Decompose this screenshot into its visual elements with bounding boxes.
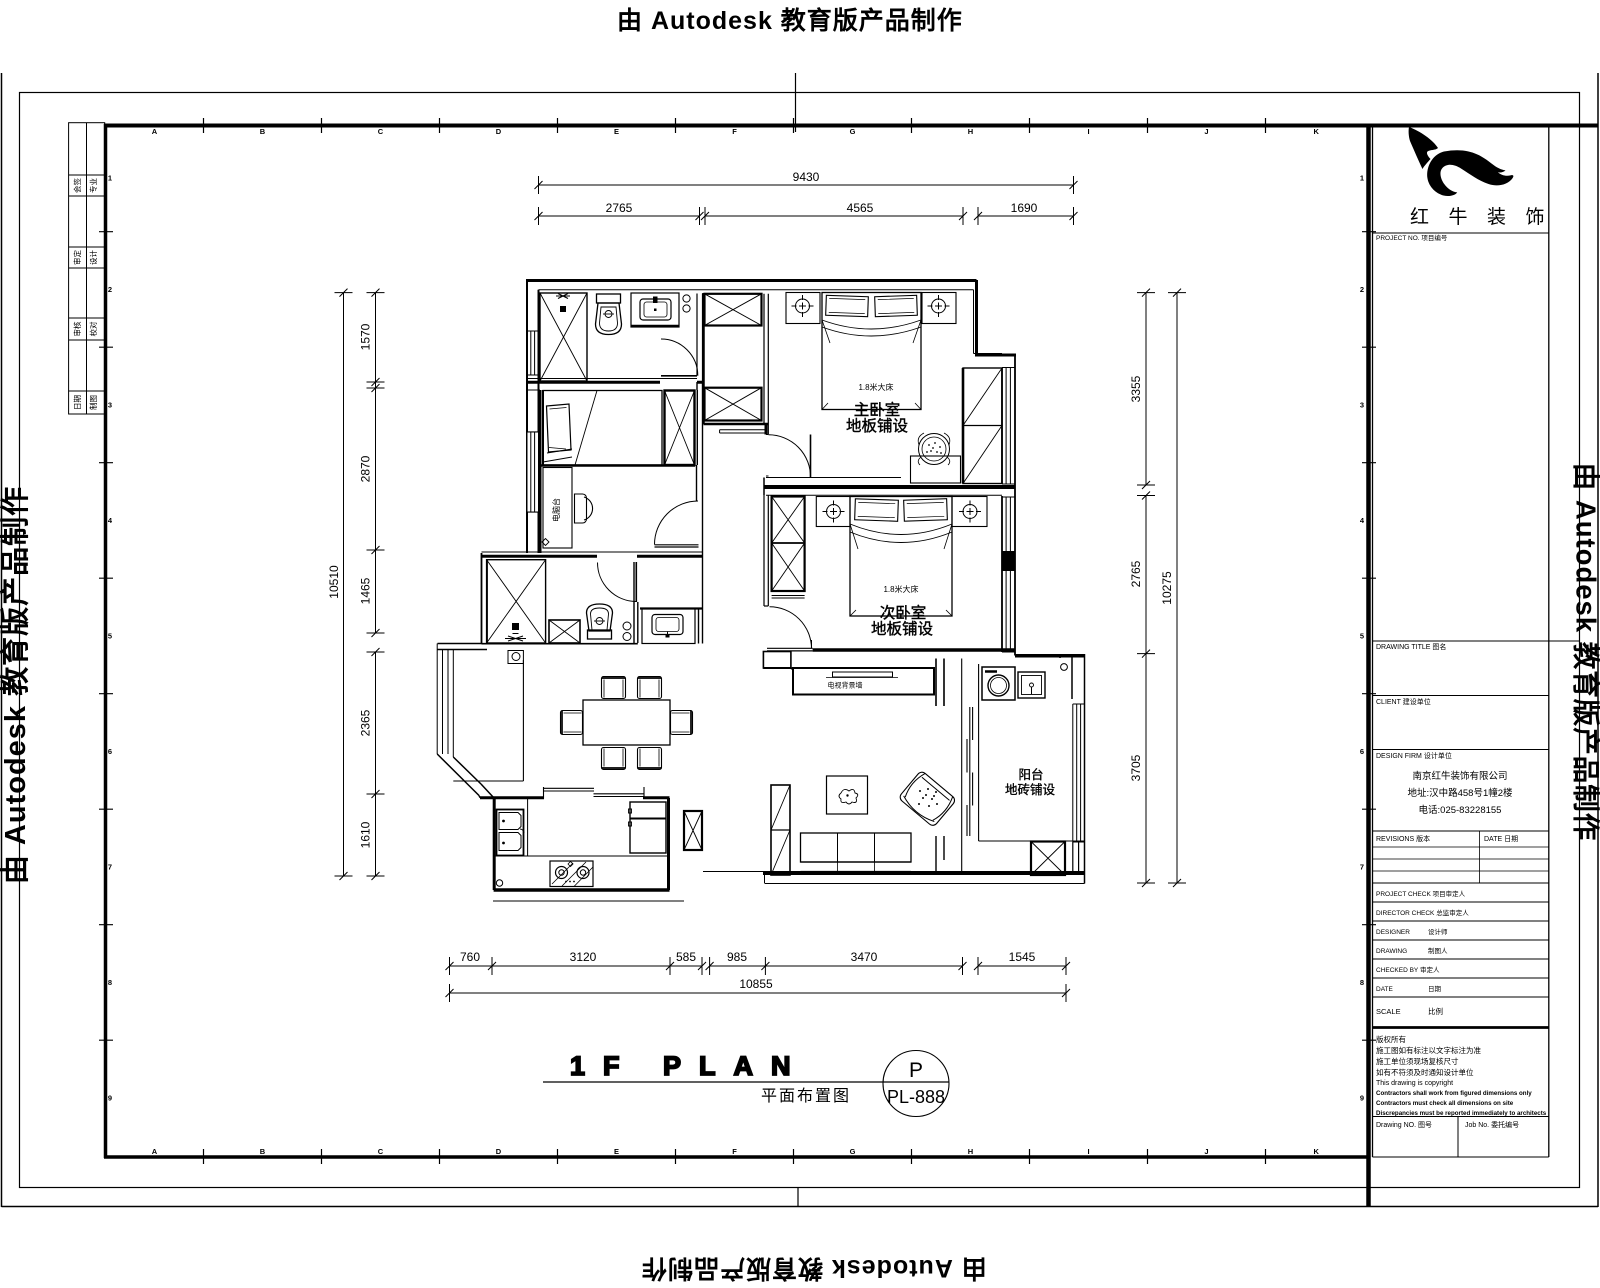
svg-text:PROJECT CHECK 项目审定人: PROJECT CHECK 项目审定人 xyxy=(1376,889,1466,898)
svg-text:A: A xyxy=(152,127,158,136)
svg-text:B: B xyxy=(260,1147,266,1156)
svg-text:DRAWING: DRAWING xyxy=(1376,948,1407,955)
svg-text:DESIGNER: DESIGNER xyxy=(1376,929,1410,936)
svg-text:DATE 日期: DATE 日期 xyxy=(1484,835,1518,843)
svg-text:电话:025-83228155: 电话:025-83228155 xyxy=(1419,804,1502,816)
svg-text:I: I xyxy=(1087,127,1089,136)
svg-text:9: 9 xyxy=(108,1094,112,1103)
svg-text:J: J xyxy=(1204,1147,1208,1156)
svg-text:I: I xyxy=(1087,1147,1089,1156)
svg-text:760: 760 xyxy=(460,950,480,964)
svg-text:7: 7 xyxy=(108,863,112,872)
svg-text:7: 7 xyxy=(1360,863,1364,872)
svg-text:主卧室: 主卧室 xyxy=(854,401,901,419)
svg-text:2365: 2365 xyxy=(359,709,373,736)
svg-text:SCALE: SCALE xyxy=(1376,1007,1401,1016)
svg-text:985: 985 xyxy=(727,950,747,964)
svg-text:3705: 3705 xyxy=(1129,754,1143,781)
svg-text:比例: 比例 xyxy=(1428,1006,1443,1016)
svg-text:5: 5 xyxy=(108,632,112,641)
svg-text:DESIGN FIRM 设计单位: DESIGN FIRM 设计单位 xyxy=(1376,751,1452,760)
svg-text:地址:汉中路458号1幢2楼: 地址:汉中路458号1幢2楼 xyxy=(1407,787,1513,799)
svg-text:3470: 3470 xyxy=(851,950,878,964)
svg-text:校对: 校对 xyxy=(88,321,98,336)
svg-text:6: 6 xyxy=(1360,747,1364,756)
svg-text:H: H xyxy=(968,127,973,136)
svg-text:制图人: 制图人 xyxy=(1428,946,1448,955)
svg-text:次卧室: 次卧室 xyxy=(880,604,927,622)
svg-text:REVISIONS 版本: REVISIONS 版本 xyxy=(1376,834,1430,843)
svg-text:DIRECTOR CHECK 总监审定人: DIRECTOR CHECK 总监审定人 xyxy=(1376,908,1469,917)
svg-text:8: 8 xyxy=(108,978,112,987)
svg-text:2870: 2870 xyxy=(359,455,373,482)
svg-text:地砖铺设: 地砖铺设 xyxy=(1005,782,1056,797)
svg-text:PROJECT NO. 项目编号: PROJECT NO. 项目编号 xyxy=(1376,233,1448,242)
svg-text:会签: 会签 xyxy=(72,178,82,193)
svg-text:DRAWING TITLE 图名: DRAWING TITLE 图名 xyxy=(1376,642,1446,651)
svg-text:专业: 专业 xyxy=(88,178,98,193)
svg-text:DATE: DATE xyxy=(1376,986,1394,993)
svg-text:J: J xyxy=(1204,127,1208,136)
svg-text:地板铺设: 地板铺设 xyxy=(846,417,908,435)
svg-text:G: G xyxy=(850,1147,856,1156)
svg-text:4: 4 xyxy=(108,516,113,525)
svg-text:2765: 2765 xyxy=(606,201,633,215)
svg-text:Job No. 委托编号: Job No. 委托编号 xyxy=(1465,1120,1519,1129)
svg-text:C: C xyxy=(378,127,384,136)
svg-text:版权所有: 版权所有 xyxy=(1376,1034,1406,1044)
svg-text:E: E xyxy=(614,127,619,136)
svg-text:Contractors must check all dim: Contractors must check all dimensions on… xyxy=(1376,1100,1514,1107)
svg-text:PL-888: PL-888 xyxy=(887,1087,945,1107)
svg-text:3120: 3120 xyxy=(570,950,597,964)
svg-text:阳台: 阳台 xyxy=(1018,767,1043,782)
svg-text:施工单位须现场复核尺寸: 施工单位须现场复核尺寸 xyxy=(1376,1056,1459,1066)
svg-text:C: C xyxy=(378,1147,384,1156)
svg-text:1610: 1610 xyxy=(359,821,373,848)
svg-text:平面布置图: 平面布置图 xyxy=(761,1087,851,1105)
svg-text:Drawing NO. 图号: Drawing NO. 图号 xyxy=(1376,1121,1432,1129)
svg-text:2765: 2765 xyxy=(1129,560,1143,587)
svg-text:如有不符须及时通知设计单位: 如有不符须及时通知设计单位 xyxy=(1376,1067,1474,1077)
svg-text:施工图如有标注以文字标注为准: 施工图如有标注以文字标注为准 xyxy=(1376,1045,1481,1055)
svg-text:制图: 制图 xyxy=(88,395,98,410)
svg-text:9: 9 xyxy=(1360,1094,1364,1103)
svg-text:CHECKED BY 审定人: CHECKED BY 审定人 xyxy=(1376,965,1440,974)
svg-text:6: 6 xyxy=(108,747,112,756)
svg-text:1690: 1690 xyxy=(1011,201,1038,215)
svg-text:B: B xyxy=(260,127,266,136)
svg-text:D: D xyxy=(496,1147,502,1156)
svg-text:4: 4 xyxy=(1360,516,1365,525)
svg-text:P: P xyxy=(909,1059,923,1082)
svg-text:G: G xyxy=(850,127,856,136)
svg-text:1545: 1545 xyxy=(1009,950,1036,964)
svg-text:红牛装饰: 红牛装饰 xyxy=(1410,206,1564,228)
svg-text:3355: 3355 xyxy=(1129,375,1143,402)
svg-text:1: 1 xyxy=(1360,174,1364,183)
svg-text:E: E xyxy=(614,1147,619,1156)
svg-text:1: 1 xyxy=(108,174,112,183)
svg-text:This drawing is copyright: This drawing is copyright xyxy=(1376,1080,1453,1087)
svg-text:2: 2 xyxy=(108,285,112,294)
svg-text:1570: 1570 xyxy=(359,323,373,350)
svg-text:10275: 10275 xyxy=(1160,571,1174,605)
svg-text:1.8米大床: 1.8米大床 xyxy=(883,584,918,594)
svg-text:K: K xyxy=(1313,127,1319,136)
svg-text:2: 2 xyxy=(1360,285,1364,294)
svg-text:日期: 日期 xyxy=(1428,985,1442,993)
svg-text:1465: 1465 xyxy=(359,577,373,604)
svg-text:设计师: 设计师 xyxy=(1428,927,1448,936)
svg-text:1F PLAN: 1F PLAN xyxy=(570,1051,809,1081)
svg-text:F: F xyxy=(732,1147,737,1156)
svg-text:地板铺设: 地板铺设 xyxy=(871,620,933,638)
svg-text:4565: 4565 xyxy=(847,201,874,215)
svg-text:南京红牛装饰有限公司: 南京红牛装饰有限公司 xyxy=(1412,770,1507,782)
svg-text:K: K xyxy=(1313,1147,1319,1156)
svg-text:Discrepancies must be reported: Discrepancies must be reported immediate… xyxy=(1376,1110,1547,1117)
svg-text:8: 8 xyxy=(1360,978,1364,987)
svg-text:H: H xyxy=(968,1147,973,1156)
svg-text:D: D xyxy=(496,127,502,136)
svg-text:9430: 9430 xyxy=(793,170,820,184)
svg-text:电脑台: 电脑台 xyxy=(551,498,561,522)
svg-text:585: 585 xyxy=(676,950,696,964)
svg-text:10510: 10510 xyxy=(327,565,341,599)
svg-text:A: A xyxy=(152,1147,158,1156)
svg-text:电视背景墙: 电视背景墙 xyxy=(828,681,863,690)
svg-text:审核: 审核 xyxy=(72,321,82,336)
svg-text:设计: 设计 xyxy=(88,250,98,265)
svg-text:10855: 10855 xyxy=(739,977,773,991)
svg-text:1.8米大床: 1.8米大床 xyxy=(858,382,893,392)
svg-text:日期: 日期 xyxy=(73,395,82,410)
svg-text:5: 5 xyxy=(1360,632,1364,641)
svg-text:审定: 审定 xyxy=(72,250,82,265)
svg-text:3: 3 xyxy=(1360,400,1364,409)
svg-text:F: F xyxy=(732,127,737,136)
svg-text:3: 3 xyxy=(108,400,112,409)
svg-text:CLIENT 建设单位: CLIENT 建设单位 xyxy=(1376,697,1431,706)
svg-text:Contractors shall work from fi: Contractors shall work from figured dime… xyxy=(1376,1090,1532,1097)
